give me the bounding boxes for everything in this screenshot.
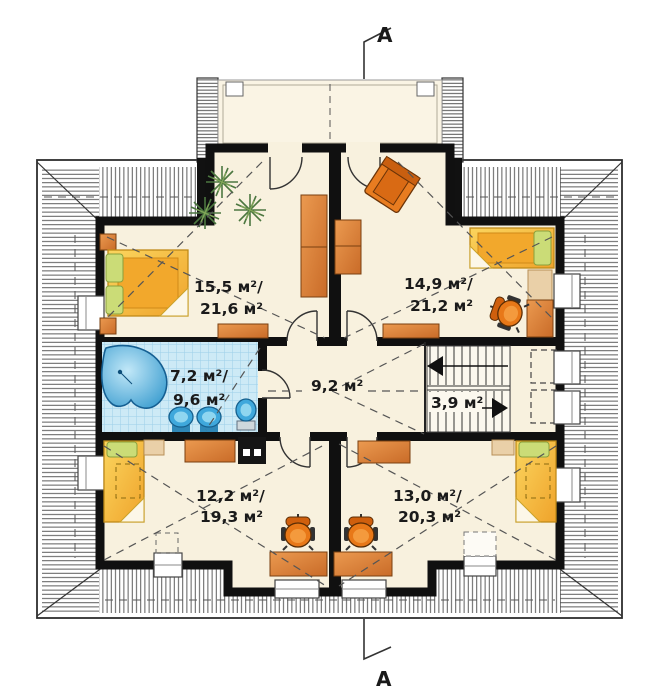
desk: [334, 552, 392, 576]
balcony-post-right: [417, 82, 434, 96]
section-letter-bottom: A: [376, 667, 392, 691]
toilet-right: [236, 399, 256, 430]
window-bottom-right: [464, 556, 496, 576]
window-bottom-left: [154, 553, 182, 577]
desk: [358, 441, 410, 463]
dashed-furniture-outline: [464, 532, 496, 556]
pillow: [534, 231, 551, 265]
balcony-post-left: [226, 82, 243, 96]
window-bottom-center-left: [275, 580, 319, 598]
dresser: [218, 324, 268, 338]
single-bed: [470, 228, 554, 268]
section-letter-top: A: [377, 23, 393, 47]
wardrobe: [335, 220, 361, 274]
wall-bathroom-right-a: [258, 337, 267, 371]
nightstand: [100, 234, 116, 250]
pillow: [107, 442, 137, 457]
toilet-middle: [197, 407, 221, 432]
cabinet-light: [528, 270, 552, 300]
wall-hall-top-b: [317, 337, 347, 346]
desk: [185, 440, 235, 462]
label-bedroom-bottom-right-2: 20,3 м²: [398, 508, 461, 526]
toilet-left: [169, 407, 193, 432]
section-marker-bottom: A: [364, 619, 392, 691]
floor-plan-drawing: 15,5 м²/ 21,6 м² 14,9 м²/ 21,2 м² 7,2 м²…: [0, 0, 659, 700]
section-marker-top: A: [364, 23, 393, 79]
pillow: [519, 442, 549, 457]
nightstand: [100, 318, 116, 334]
staircase: [427, 346, 510, 432]
pillow: [106, 286, 123, 314]
label-bedroom-bottom-left-1: 12,2 м²/: [196, 487, 265, 505]
dresser: [383, 324, 439, 338]
single-bed: [104, 441, 144, 522]
label-hall: 9,2 м²: [311, 377, 363, 395]
roof-slope-right: [560, 167, 618, 613]
wall-bottom-rooms-top-b: [310, 432, 347, 441]
label-bathroom-1: 7,2 м²/: [170, 367, 228, 385]
floor-plan: 15,5 м²/ 21,6 м² 14,9 м²/ 21,2 м² 7,2 м²…: [0, 0, 659, 700]
label-bedroom-bottom-right-1: 13,0 м²/: [393, 487, 462, 505]
window-right-top: [554, 274, 580, 308]
label-bedroom-top-right-2: 21,2 м²: [410, 297, 473, 315]
window-bottom-center-right: [342, 580, 386, 598]
roof-slope-left: [42, 167, 99, 613]
shelf-unit: [238, 437, 266, 464]
wardrobe: [301, 195, 327, 297]
label-bathroom-2: 9,6 м²: [173, 391, 225, 409]
label-bedroom-top-left-2: 21,6 м²: [200, 300, 263, 318]
label-staircase: 3,9 м²: [431, 394, 483, 412]
window-right-stairs-2: [554, 391, 580, 424]
wall-bottom-rooms-top-c: [377, 432, 564, 441]
window-right-stairs-1: [554, 351, 580, 384]
window-right-bottom: [554, 468, 580, 502]
window-left-bottom: [78, 456, 104, 490]
pillow: [106, 254, 123, 282]
label-bedroom-top-right-1: 14,9 м²/: [404, 275, 473, 293]
single-bed: [516, 441, 556, 522]
desk: [270, 552, 327, 576]
cabinet-light: [492, 440, 514, 455]
label-bedroom-top-left-1: 15,5 м²/: [194, 278, 263, 296]
label-bedroom-bottom-left-2: 19,3 м²: [200, 508, 263, 526]
cabinet-light: [144, 440, 164, 455]
